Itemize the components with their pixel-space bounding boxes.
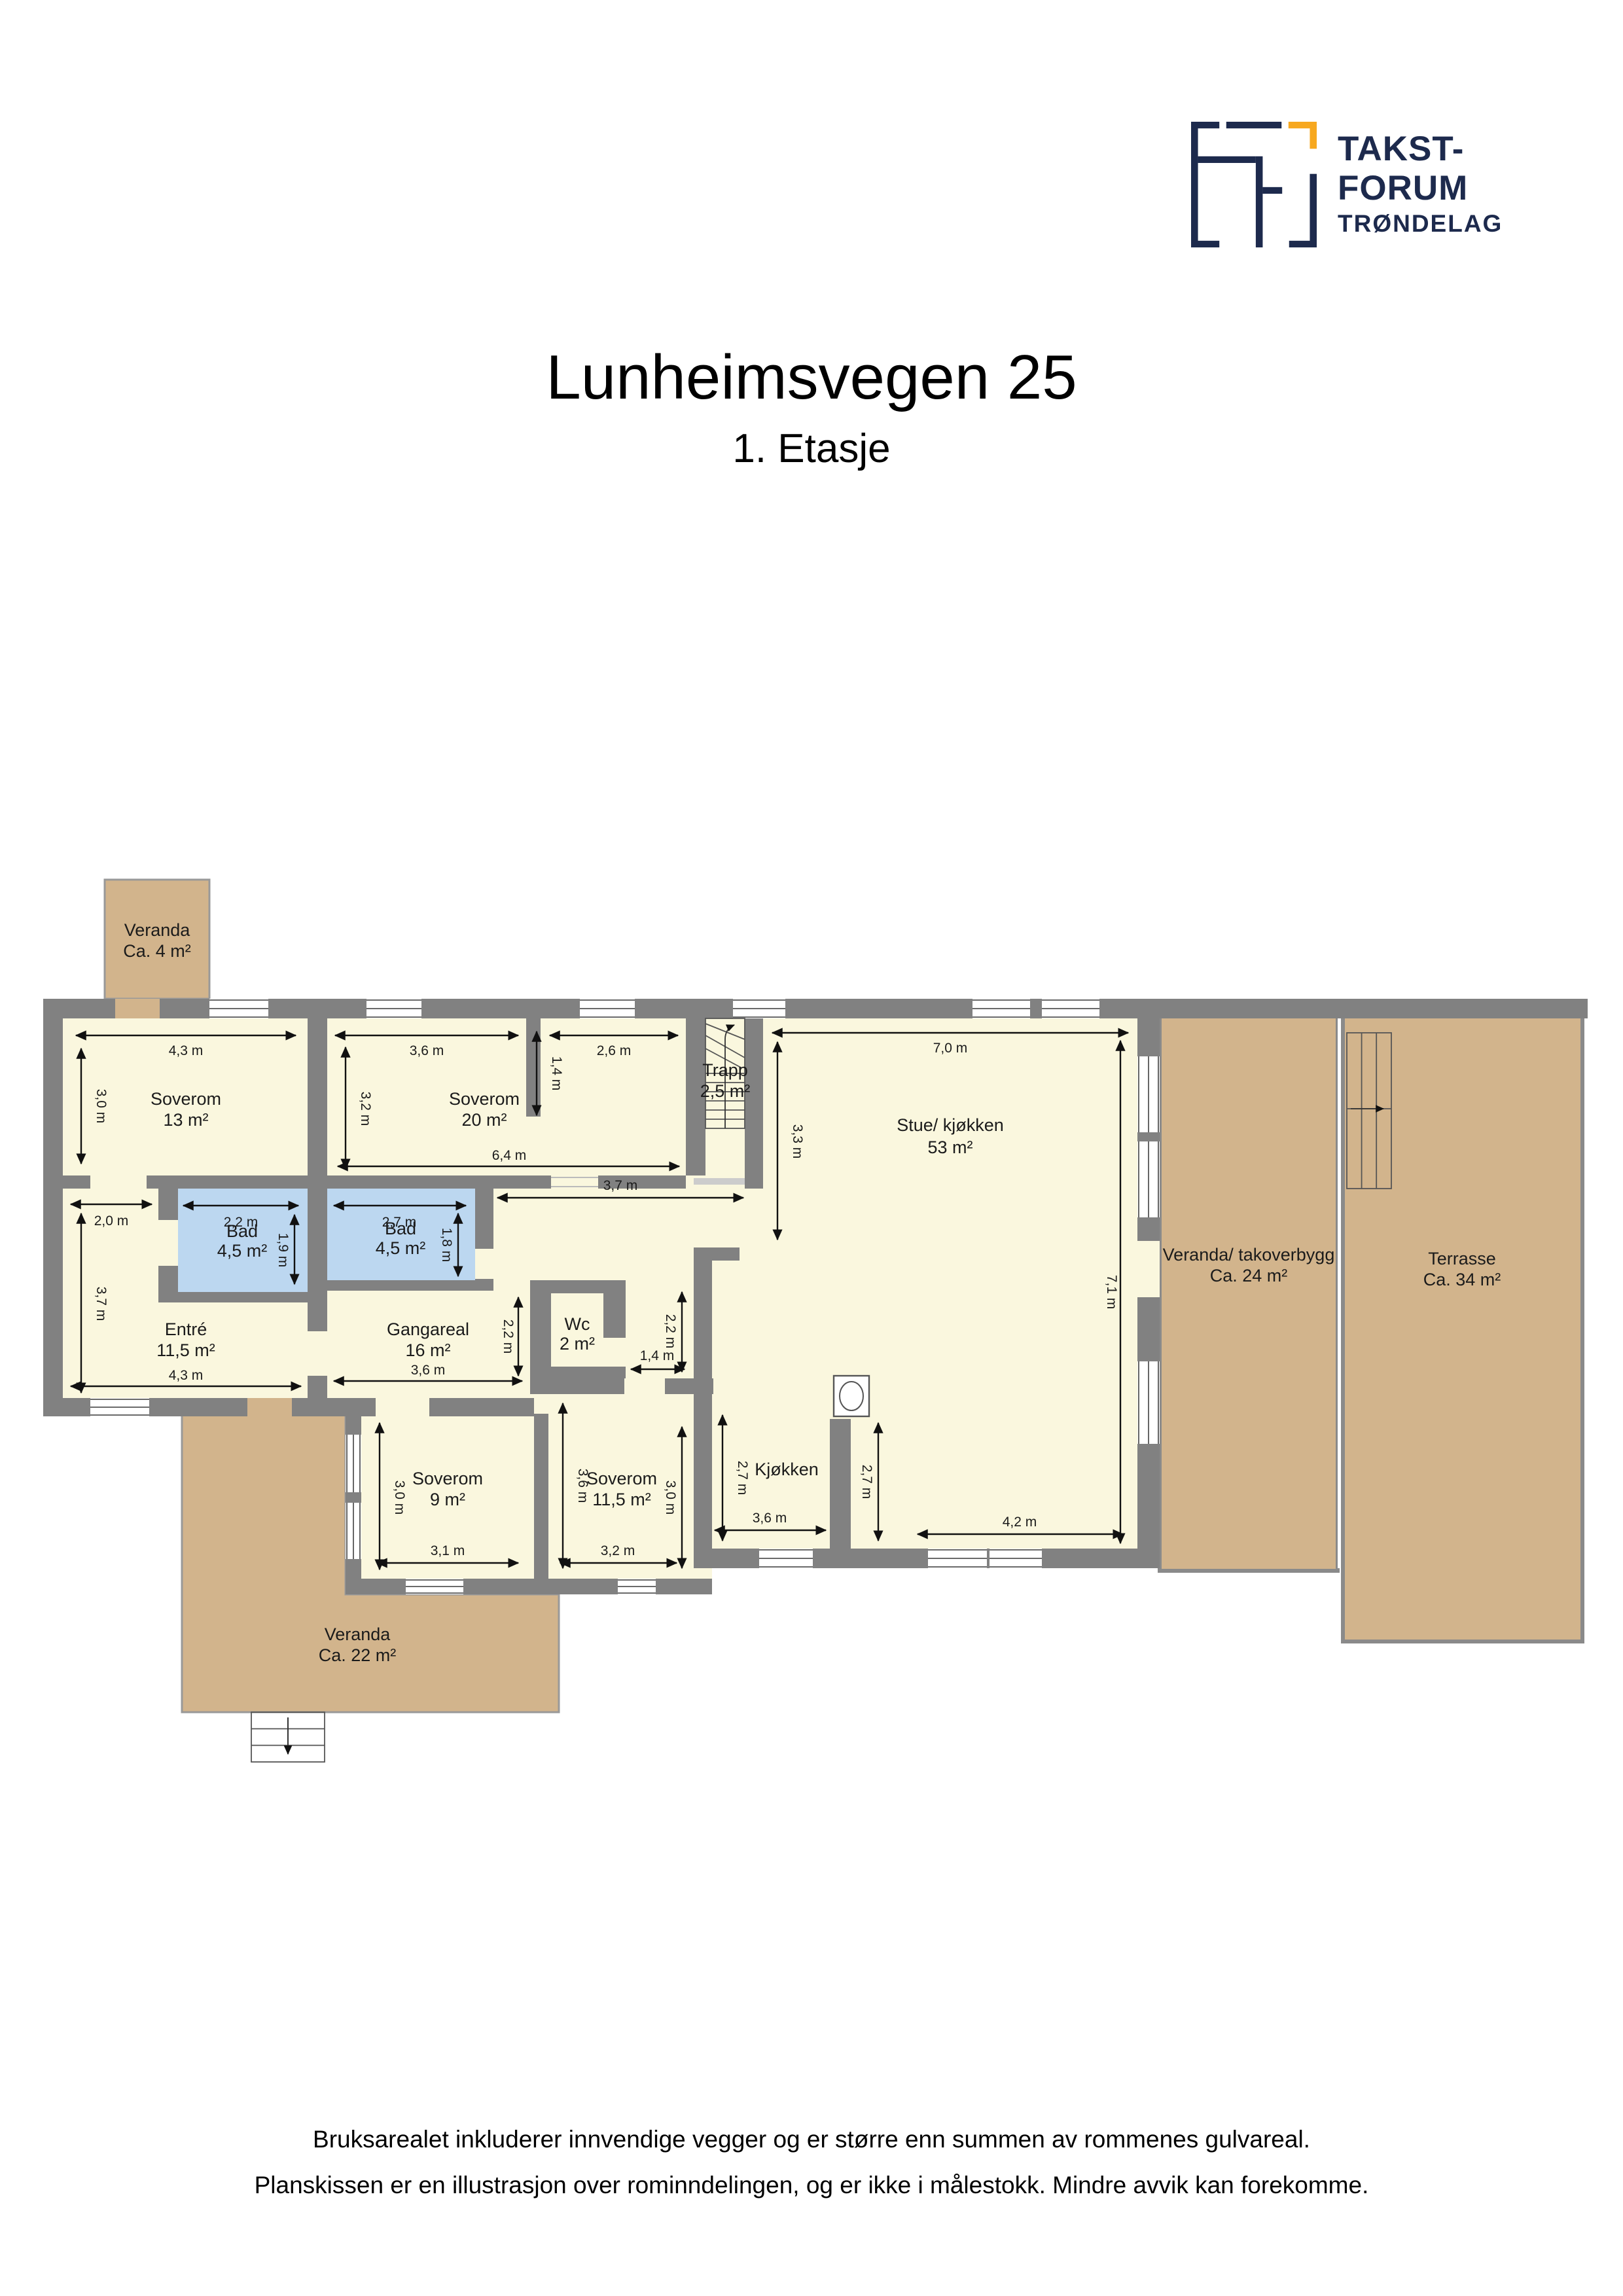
svg-text:20 m²: 20 m²: [461, 1110, 507, 1130]
window: [1042, 999, 1099, 1018]
svg-text:Soverom: Soverom: [151, 1089, 221, 1109]
logo-line2: FORUM: [1338, 169, 1503, 208]
svg-text:Veranda: Veranda: [325, 1624, 391, 1644]
svg-text:Ca. 34 m²: Ca. 34 m²: [1423, 1270, 1501, 1289]
window: [733, 999, 785, 1018]
svg-text:Soverom: Soverom: [449, 1089, 520, 1109]
page-title: Lunheimsvegen 25: [0, 342, 1623, 414]
window: [1137, 1361, 1160, 1444]
svg-text:Veranda/ takoverbygg: Veranda/ takoverbygg: [1163, 1245, 1335, 1265]
dimension-label: 7,0 m: [933, 1041, 968, 1056]
window: [346, 1435, 361, 1492]
dimension-label: 7,1 m: [1104, 1275, 1119, 1310]
entrance-door: [247, 1398, 292, 1416]
logo-line3: TRØNDELAG: [1338, 208, 1503, 240]
soverom9-door: [376, 1398, 429, 1416]
dimension-label: 4,2 m: [1003, 1515, 1037, 1530]
svg-text:Bad: Bad: [385, 1219, 416, 1238]
dimension-label: 3,0 m: [663, 1480, 678, 1515]
window: [90, 1398, 149, 1416]
floorplan-drawing: 4,3 m 3,0 m 3,6 m 2,6 m 1,4 m 3,2 m 6,4 …: [0, 864, 1623, 1937]
svg-text:Wc: Wc: [565, 1314, 590, 1334]
svg-text:Entré: Entré: [165, 1319, 207, 1339]
trapp-pocket-door: [694, 1178, 745, 1185]
window: [1137, 1141, 1160, 1217]
svg-text:13 m²: 13 m²: [163, 1110, 208, 1130]
wc-door: [603, 1338, 626, 1367]
dimension-label: 3,2 m: [601, 1543, 635, 1558]
svg-text:Veranda: Veranda: [124, 920, 191, 940]
window: [1137, 1056, 1160, 1132]
dimension-label: 3,1 m: [431, 1543, 465, 1558]
dimension-label: 4,3 m: [169, 1043, 204, 1058]
svg-text:2 m²: 2 m²: [560, 1334, 595, 1354]
dimension-label: 2,7 m: [859, 1465, 874, 1499]
dimension-label: 3,0 m: [392, 1480, 407, 1515]
stue-veranda-door: [1137, 1241, 1160, 1297]
svg-text:4,5 m²: 4,5 m²: [217, 1241, 268, 1261]
svg-text:Ca. 4 m²: Ca. 4 m²: [123, 941, 191, 961]
svg-text:Gangareal: Gangareal: [387, 1319, 469, 1339]
logo: TAKST- FORUM TRØNDELAG: [1191, 122, 1503, 247]
room-label-kjokken: Kjøkken: [755, 1460, 819, 1479]
svg-text:9 m²: 9 m²: [430, 1490, 465, 1509]
logo-text: TAKST- FORUM TRØNDELAG: [1338, 130, 1503, 240]
svg-text:16 m²: 16 m²: [405, 1340, 450, 1360]
svg-text:Soverom: Soverom: [412, 1469, 483, 1488]
page-subtitle: 1. Etasje: [0, 425, 1623, 472]
window: [366, 999, 421, 1018]
svg-text:Stue/ kjøkken: Stue/ kjøkken: [897, 1115, 1004, 1135]
veranda-24-area: [1160, 1008, 1338, 1571]
exterior-steps-icon: [251, 1712, 325, 1762]
dimension-label: 3,6 m: [411, 1363, 446, 1378]
dimension-label: 3,3 m: [790, 1124, 805, 1159]
dimension-label: 1,4 m: [640, 1348, 675, 1363]
svg-text:Soverom: Soverom: [586, 1469, 657, 1488]
window: [618, 1579, 656, 1594]
svg-text:Kjøkken: Kjøkken: [755, 1460, 819, 1479]
svg-text:11,5 m²: 11,5 m²: [156, 1340, 215, 1360]
svg-text:Terrasse: Terrasse: [1428, 1249, 1496, 1268]
dimension-label: 4,3 m: [169, 1368, 204, 1383]
window: [209, 999, 268, 1018]
window: [990, 1549, 1042, 1568]
dimension-label: 2,2 m: [501, 1319, 516, 1354]
footer-line1: Bruksarealet inkluderer innvendige vegge…: [0, 2126, 1623, 2153]
bad2-door: [475, 1249, 493, 1279]
dimension-label: 1,4 m: [549, 1056, 564, 1091]
stove-icon: [834, 1376, 869, 1416]
dimension-label: 3,2 m: [358, 1092, 373, 1126]
bad1-door: [158, 1220, 178, 1266]
logo-mark-icon: [1191, 122, 1317, 247]
soverom115-door: [624, 1378, 665, 1394]
dimension-label: 6,4 m: [492, 1148, 527, 1163]
dimension-label: 2,6 m: [597, 1043, 632, 1058]
dimension-label: 2,2 m: [663, 1314, 678, 1349]
svg-text:Ca. 24 m²: Ca. 24 m²: [1210, 1266, 1288, 1285]
svg-text:4,5 m²: 4,5 m²: [376, 1238, 426, 1258]
soverom13-door: [90, 1175, 147, 1189]
svg-text:Ca. 22 m²: Ca. 22 m²: [319, 1645, 397, 1665]
dimension-label: 3,6 m: [410, 1043, 444, 1058]
window: [928, 1549, 987, 1568]
window: [346, 1503, 361, 1559]
window: [972, 999, 1030, 1018]
dimension-label: 1,9 m: [276, 1233, 291, 1268]
svg-text:Bad: Bad: [226, 1221, 258, 1241]
veranda4-door: [115, 999, 160, 1018]
svg-text:11,5 m²: 11,5 m²: [592, 1490, 651, 1509]
footer-line2: Planskissen er en illustrasjon over romi…: [0, 2172, 1623, 2199]
svg-text:53 m²: 53 m²: [927, 1138, 972, 1157]
svg-text:Trapp: Trapp: [702, 1060, 748, 1080]
dimension-label: 3,0 m: [94, 1089, 109, 1124]
dimension-label: 3,7 m: [94, 1287, 109, 1321]
room-label-wc: Wc 2 m²: [560, 1314, 595, 1354]
dimension-label: 2,0 m: [94, 1213, 129, 1229]
floorplan-page: TAKST- FORUM TRØNDELAG Lunheimsvegen 25 …: [0, 0, 1623, 2296]
dimension-label: 3,6 m: [753, 1511, 787, 1526]
window: [406, 1579, 463, 1594]
window: [580, 999, 635, 1018]
terrasse-area: [1343, 1008, 1582, 1641]
svg-text:2,5 m²: 2,5 m²: [700, 1081, 751, 1101]
window: [759, 1549, 813, 1568]
logo-line1: TAKST-: [1338, 130, 1503, 169]
dimension-label: 1,8 m: [439, 1228, 454, 1263]
dimension-label: 3,7 m: [603, 1178, 638, 1193]
dimension-label: 2,7 m: [735, 1461, 750, 1496]
